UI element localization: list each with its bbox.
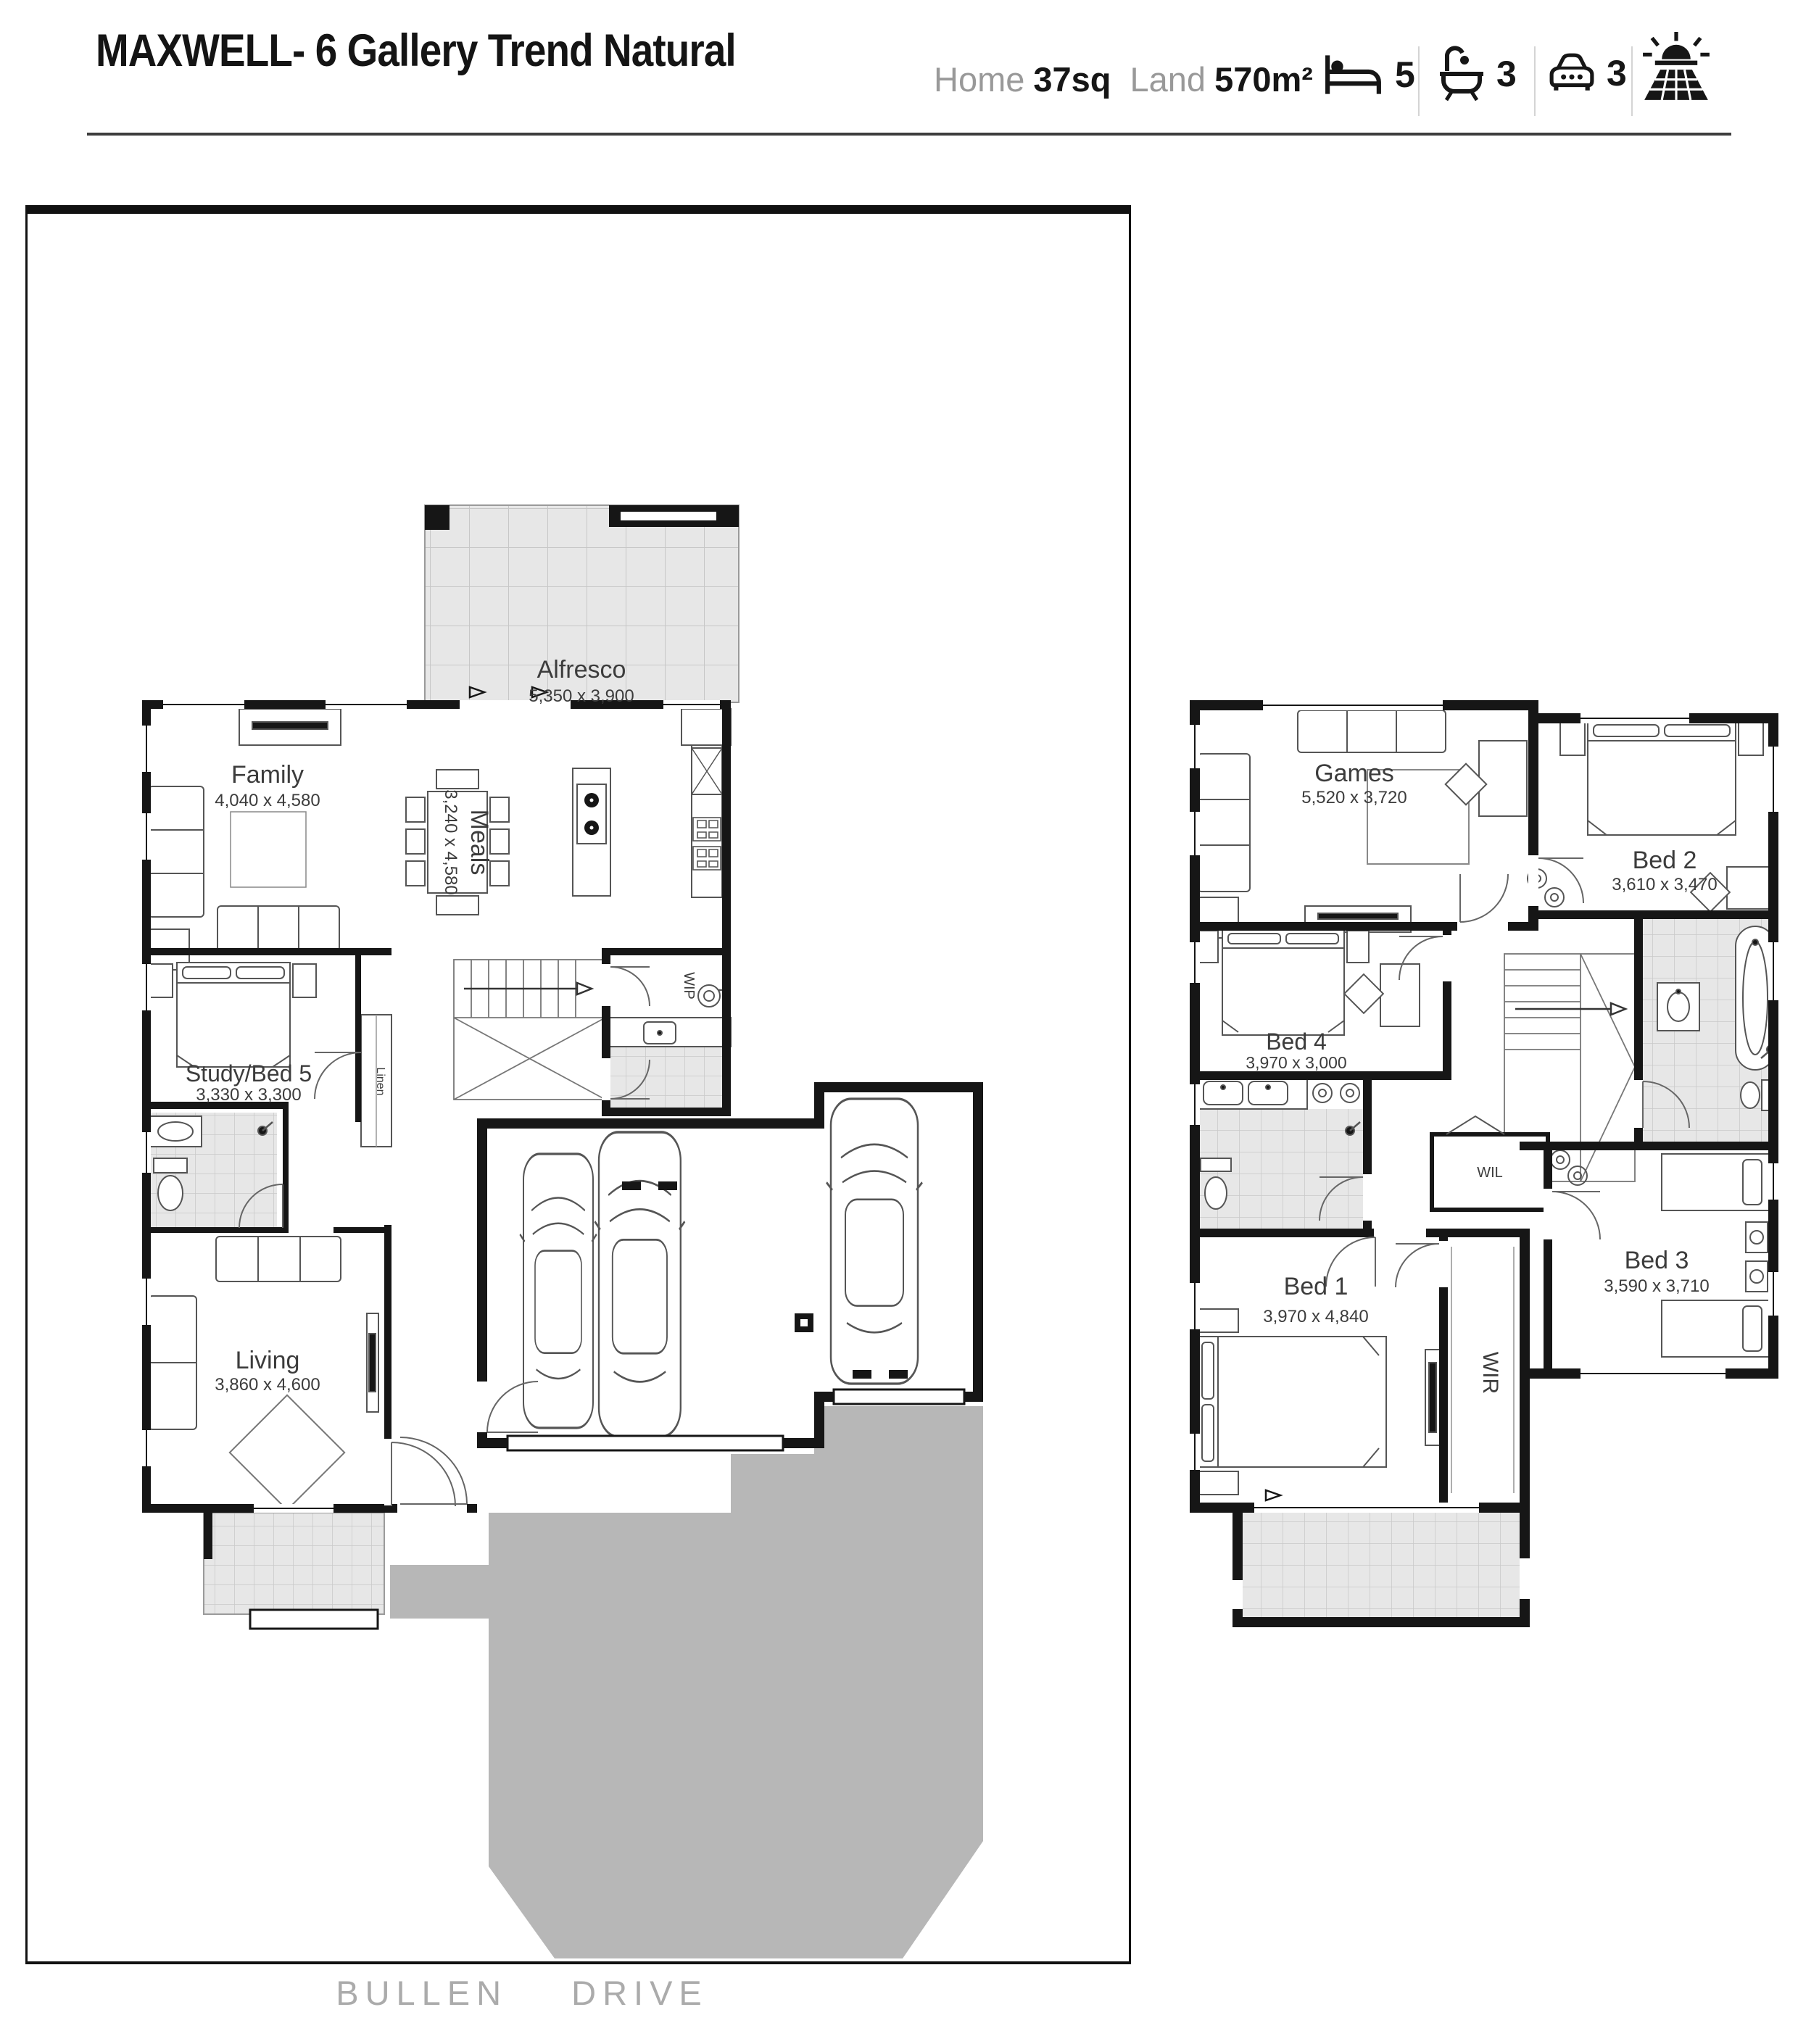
alfresco-dims: 5,350 x 3,900 [529,686,634,706]
street-name: BULLEN DRIVE [261,1973,783,2013]
car-1 [520,1154,597,1428]
bed3-dims: 3,590 x 3,710 [1604,1276,1709,1296]
bed3-label: Bed 3 [1625,1247,1689,1274]
bed1-label: Bed 1 [1284,1273,1348,1300]
car-3 [826,1099,922,1384]
stairs [454,960,605,1100]
porch [204,1513,384,1629]
stat-divider [1631,46,1633,116]
wip-label: WIP [681,972,697,1000]
study-dims: 3,330 x 3,300 [196,1085,301,1105]
bedrooms-stat: 5 [1324,54,1415,96]
wil-label: WIL [1477,1165,1503,1181]
bed2-dims: 3,610 x 3,470 [1612,875,1717,894]
first-floor-plan: Games 5,520 x 3,720 Bed 2 3,610 x 3,470 … [1145,689,1798,1645]
living-dims: 3,860 x 4,600 [215,1375,320,1395]
balcony [1232,1513,1530,1627]
family-label: Family [231,761,304,789]
alfresco-label: Alfresco [537,656,626,684]
meals-label: Meals [465,810,493,876]
bed4-dims: 3,970 x 3,000 [1246,1053,1346,1072]
bedrooms-count: 5 [1395,54,1415,96]
family-dims: 4,040 x 4,580 [215,791,320,810]
land-label: Land [1130,60,1206,99]
stat-divider [1534,46,1536,116]
header-divider [87,133,1731,136]
page-title: MAXWELL- 6 Gallery Trend Natural [96,25,736,77]
wir-label: WIR [1478,1352,1502,1394]
solar-stat [1641,32,1711,101]
bed2-label: Bed 2 [1633,847,1697,874]
cars-count: 3 [1607,52,1627,94]
header-stats: Home37sqLand570m² [934,59,1332,99]
car-2 [594,1132,684,1437]
living-label: Living [236,1347,300,1374]
ground-floor-plan: Alfresco 5,350 x 3,900 Family 4,040 x 4,… [25,205,1131,1964]
bathrooms-count: 3 [1496,53,1517,95]
bathrooms-stat: 3 [1438,45,1517,103]
cars-stat: 3 [1549,52,1627,94]
bed1-dims: 3,970 x 4,840 [1263,1307,1368,1326]
home-label: Home [934,60,1024,99]
stat-divider [1418,46,1420,116]
bed4-label: Bed 4 [1266,1029,1327,1055]
study-label: Study/Bed 5 [186,1060,312,1087]
bed-icon [1324,54,1383,96]
meals-dims: 3,240 x 4,580 [441,789,460,894]
powder-floor [609,1047,731,1112]
bath-icon [1438,45,1485,103]
land-value: 570m² [1214,60,1313,99]
games-dims: 5,520 x 3,720 [1301,788,1406,807]
floorplan-sheet: MAXWELL- 6 Gallery Trend Natural Home37s… [0,0,1798,2044]
linen-label: Linen [374,1067,386,1095]
games-label: Games [1314,760,1394,787]
home-value: 37sq [1033,60,1111,99]
car-icon [1549,52,1595,94]
solar-panel-icon [1641,32,1711,101]
